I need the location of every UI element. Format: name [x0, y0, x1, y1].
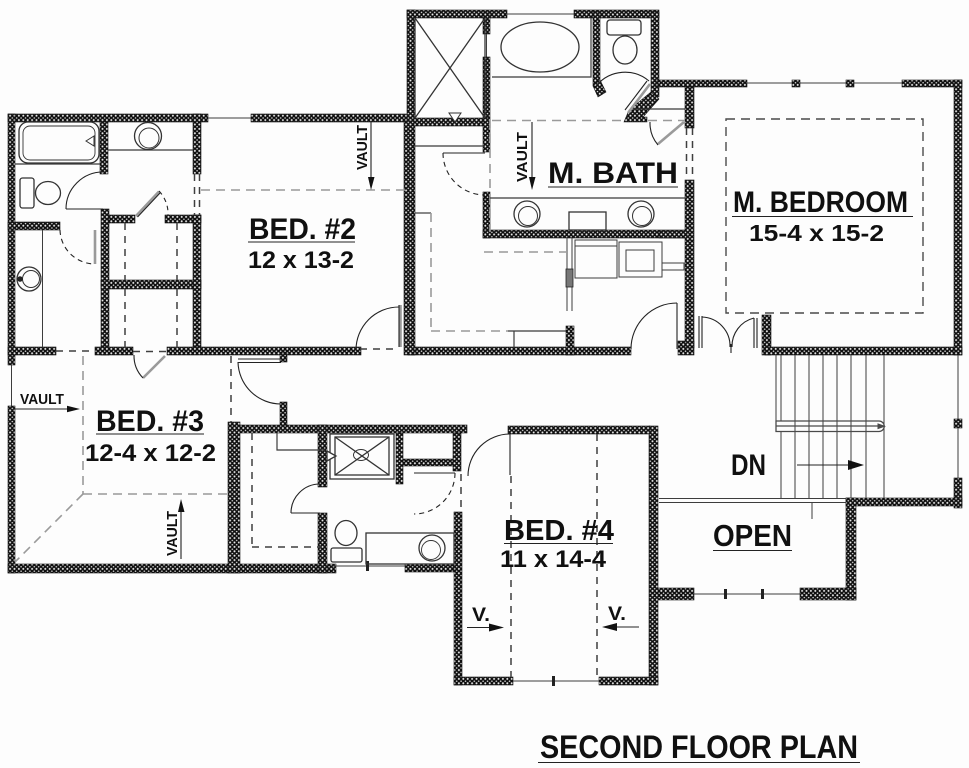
svg-text:DN: DN [731, 449, 766, 482]
svg-text:SECOND FLOOR PLAN: SECOND FLOOR PLAN [540, 729, 858, 765]
svg-text:12 x 13-2: 12 x 13-2 [248, 247, 354, 274]
svg-text:BED. #3: BED. #3 [96, 405, 204, 438]
svg-text:V.: V. [608, 604, 626, 625]
svg-text:VAULT: VAULT [354, 125, 371, 170]
svg-text:V.: V. [472, 605, 490, 626]
svg-text:M. BATH: M. BATH [548, 157, 678, 190]
svg-text:15-4 x 15-2: 15-4 x 15-2 [749, 220, 884, 246]
svg-text:BED. #2: BED. #2 [249, 213, 356, 246]
svg-text:12-4 x 12-2: 12-4 x 12-2 [85, 440, 216, 467]
svg-text:VAULT: VAULT [164, 511, 181, 556]
svg-text:OPEN: OPEN [713, 518, 792, 553]
svg-text:BED. #4: BED. #4 [504, 515, 614, 547]
svg-text:VAULT: VAULT [20, 391, 64, 408]
svg-text:11 x 14-4: 11 x 14-4 [500, 546, 607, 573]
svg-text:M. BEDROOM: M. BEDROOM [733, 186, 908, 219]
svg-text:VAULT: VAULT [514, 132, 531, 182]
